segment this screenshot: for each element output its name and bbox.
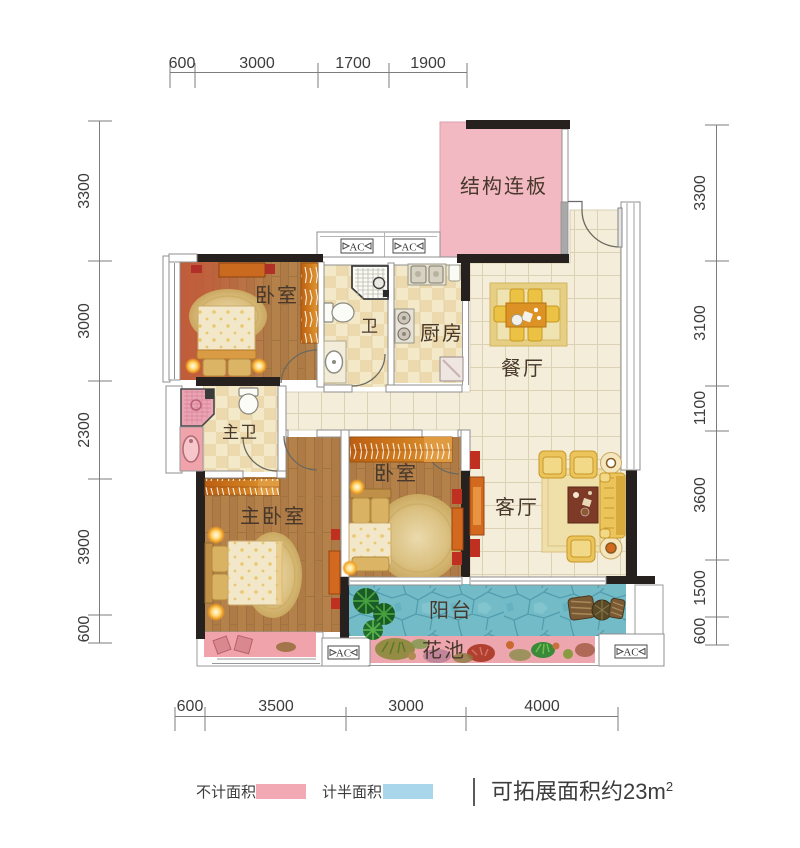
svg-text:客厅: 客厅: [495, 496, 539, 519]
svg-text:3500: 3500: [258, 698, 294, 715]
svg-text:600: 600: [692, 618, 709, 645]
svg-text:3000: 3000: [239, 55, 275, 72]
svg-text:卧室: 卧室: [255, 284, 299, 307]
svg-text:AC: AC: [401, 242, 416, 254]
svg-text:计半面积: 计半面积: [322, 784, 382, 801]
svg-text:600: 600: [169, 55, 196, 72]
svg-text:3300: 3300: [692, 175, 709, 211]
svg-text:厨房: 厨房: [420, 322, 464, 345]
svg-text:可拓展面积约23m2: 可拓展面积约23m2: [491, 779, 673, 804]
svg-text:结构连板: 结构连板: [460, 175, 548, 198]
svg-text:3000: 3000: [76, 303, 93, 339]
svg-text:1900: 1900: [410, 55, 446, 72]
svg-text:3600: 3600: [692, 477, 709, 513]
svg-text:2300: 2300: [76, 412, 93, 448]
svg-text:600: 600: [76, 616, 93, 643]
svg-text:花池: 花池: [422, 639, 466, 662]
svg-text:阳台: 阳台: [429, 599, 473, 622]
svg-text:3100: 3100: [692, 305, 709, 341]
svg-text:餐厅: 餐厅: [501, 357, 545, 380]
svg-text:卧室: 卧室: [374, 462, 418, 485]
svg-text:1700: 1700: [335, 55, 371, 72]
svg-text:600: 600: [177, 698, 204, 715]
svg-text:AC: AC: [349, 242, 364, 254]
svg-text:AC: AC: [623, 647, 638, 659]
svg-text:主卫: 主卫: [222, 423, 258, 442]
svg-text:1100: 1100: [692, 391, 709, 426]
svg-text:卫: 卫: [361, 317, 379, 336]
svg-text:主卧室: 主卧室: [240, 505, 306, 528]
svg-text:1500: 1500: [692, 570, 709, 606]
svg-text:3900: 3900: [76, 529, 93, 565]
svg-text:3300: 3300: [76, 173, 93, 209]
svg-text:AC: AC: [336, 648, 351, 660]
svg-text:不计面积: 不计面积: [196, 784, 256, 801]
svg-text:4000: 4000: [524, 698, 560, 715]
svg-text:3000: 3000: [388, 698, 424, 715]
